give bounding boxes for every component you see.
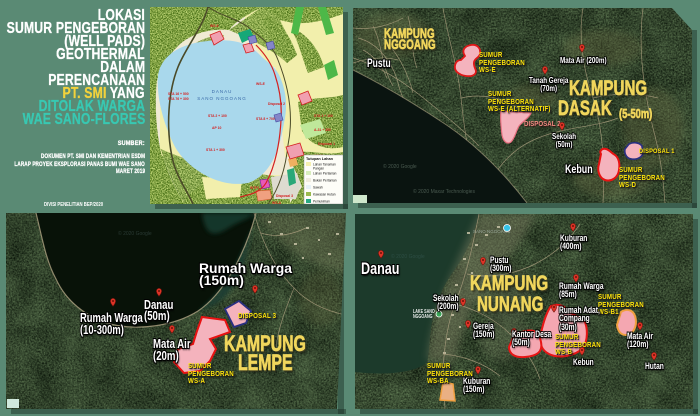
svg-text:Bukan Pertanian: Bukan Pertanian: [313, 179, 337, 183]
svg-text:SANO NGGOANG: SANO NGGOANG: [197, 96, 247, 101]
svg-text:STA 1 + 300: STA 1 + 300: [206, 148, 225, 152]
svg-text:Pemukiman: Pemukiman: [313, 200, 330, 204]
svg-text:SANO NGGOANG: SANO NGGOANG: [473, 229, 511, 234]
svg-text:STA 2 + 100: STA 2 + 100: [208, 114, 227, 118]
svg-text:DANAU: DANAU: [212, 89, 233, 94]
svg-text:Pangan: Pangan: [313, 167, 324, 171]
svg-text:Lahan Pertanian: Lahan Pertanian: [313, 172, 337, 176]
svg-text:STA 76 + 300: STA 76 + 300: [168, 97, 189, 101]
svg-text:Disposal 2: Disposal 2: [268, 102, 285, 106]
svg-text:STA 8 + 700: STA 8 + 700: [256, 117, 275, 121]
svg-text:WS-E: WS-E: [256, 82, 266, 86]
svg-text:A-31 + 350: A-31 + 350: [314, 128, 331, 132]
svg-text:Disposal 1: Disposal 1: [318, 142, 335, 146]
svg-text:WS-6: WS-6: [210, 24, 219, 28]
svg-text:Kawasan Hutan: Kawasan Hutan: [313, 193, 336, 197]
svg-text:Disposal 3: Disposal 3: [276, 194, 293, 198]
svg-text:WTP1: WTP1: [250, 186, 260, 190]
svg-text:AP 10: AP 10: [212, 126, 221, 130]
svg-text:Sawah: Sawah: [313, 186, 323, 190]
svg-text:WS-A: WS-A: [272, 201, 282, 204]
svg-text:STA 1 + 100: STA 1 + 100: [314, 114, 333, 118]
svg-text:STA 16 + 500: STA 16 + 500: [168, 92, 189, 96]
svg-text:Tutupan Lahan: Tutupan Lahan: [306, 157, 334, 161]
